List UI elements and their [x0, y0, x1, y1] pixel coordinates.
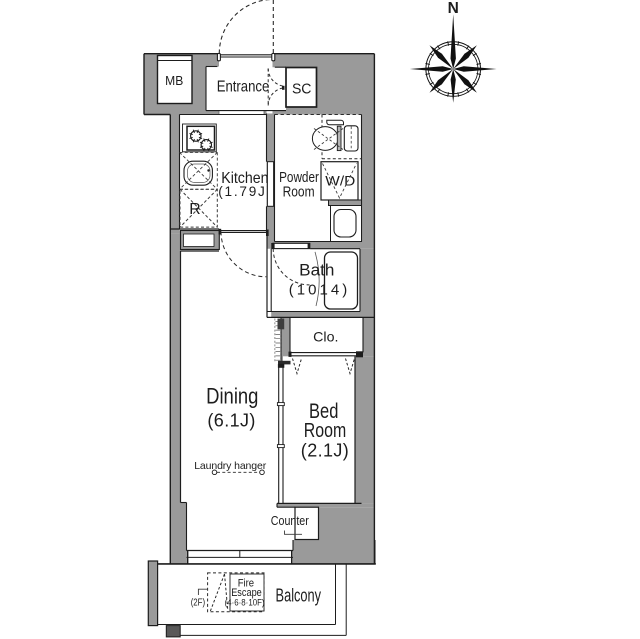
svg-text:Powder: Powder: [279, 170, 319, 186]
svg-text:Entrance: Entrance: [217, 78, 270, 95]
svg-text:(2F): (2F): [191, 597, 205, 609]
svg-text:Counter: Counter: [271, 513, 310, 528]
svg-text:(2.1J): (2.1J): [301, 440, 349, 460]
svg-text:Laundry hanger: Laundry hanger: [194, 460, 267, 472]
svg-text:SC: SC: [292, 81, 312, 97]
svg-text:(6.1J): (6.1J): [207, 410, 255, 430]
svg-text:R: R: [189, 201, 200, 218]
svg-text:MB: MB: [165, 73, 183, 88]
svg-text:W/D: W/D: [325, 172, 355, 188]
svg-text:Bath: Bath: [299, 260, 334, 279]
svg-text:Room: Room: [304, 420, 346, 442]
svg-text:(1.79J): (1.79J): [218, 184, 271, 199]
svg-text:N: N: [448, 0, 459, 17]
svg-text:Balcony: Balcony: [276, 586, 322, 606]
svg-text:Room: Room: [283, 185, 315, 201]
svg-text:Clo.: Clo.: [313, 328, 338, 344]
svg-text:Dining: Dining: [206, 384, 258, 409]
svg-text:(4·6·8·10F): (4·6·8·10F): [225, 598, 265, 609]
